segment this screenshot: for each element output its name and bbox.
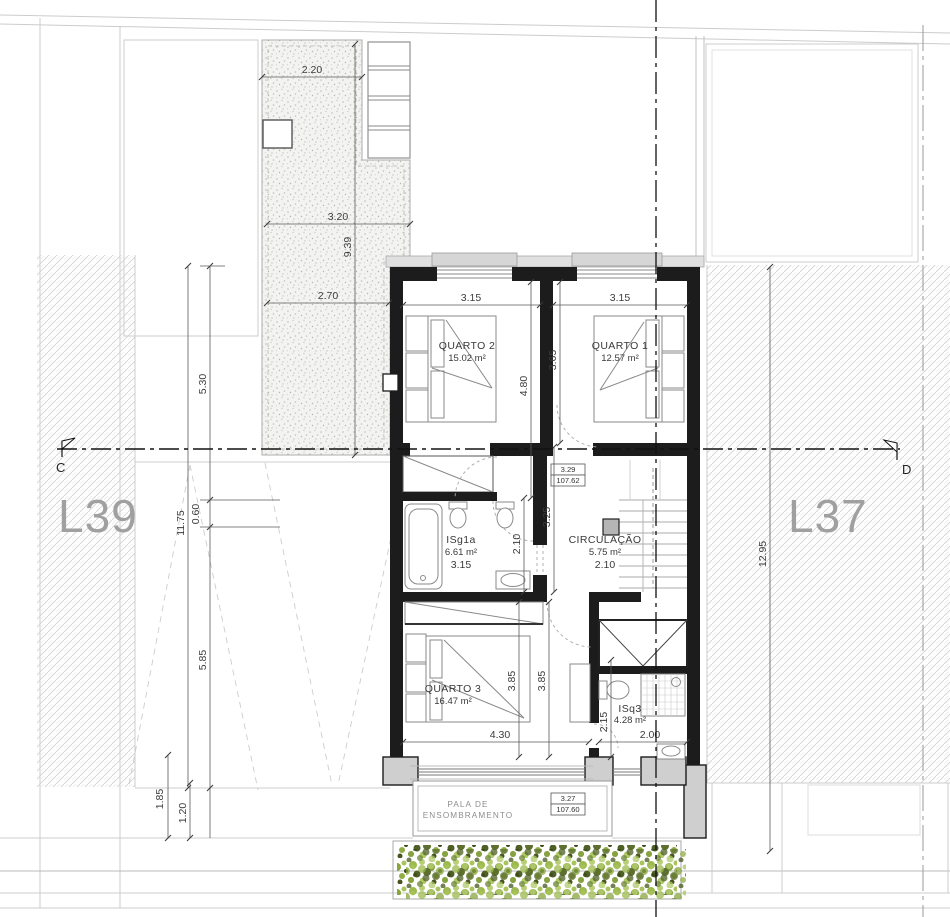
yard-slope-lines <box>128 463 407 790</box>
pergola-steps <box>368 42 410 158</box>
washbasin-isq3 <box>657 744 685 759</box>
room-label-quarto2: QUARTO 2 <box>439 340 496 352</box>
room-label-quarto1: QUARTO 1 <box>592 340 649 352</box>
room-area-quarto1: 12.57 m² <box>601 353 639 364</box>
bed-quarto2 <box>406 316 496 422</box>
dim-quarto2-width: 3.15 <box>461 292 482 304</box>
dim-yard-top: 2.20 <box>302 64 323 76</box>
dim-left-185: 1.85 <box>154 789 166 810</box>
level-marker-lower: 3.27 107.60 <box>551 793 585 815</box>
building <box>383 253 706 838</box>
shade-label-line2: ENSOMBRAMENTO <box>423 811 514 820</box>
dim-isg1a-width: 3.15 <box>451 559 472 571</box>
bathtub <box>405 504 442 589</box>
room-area-isg1a: 6.61 m² <box>445 547 477 558</box>
dim-yard-height: 9.39 <box>342 237 354 258</box>
dim-quarto2-depth: 4.80 <box>518 376 530 397</box>
dim-quarto1-depth: 3.65 <box>547 350 559 371</box>
room-label-isq3: ISq3 <box>618 703 641 715</box>
dim-circ-depth: 3.25 <box>541 507 553 528</box>
gravel-yard <box>262 40 410 455</box>
lot-label-left: L39 <box>58 490 138 542</box>
room-area-circulacao: 5.75 m² <box>589 547 621 558</box>
lot-label-right: L37 <box>788 490 868 542</box>
toilet-isq3 <box>599 681 629 699</box>
room-label-quarto3: QUARTO 3 <box>425 683 482 695</box>
level-height: 3.29 <box>561 465 576 474</box>
floor-plan-drawing: PALA DE ENSOMBRAMENTO 3.29 107.62 3.27 1… <box>0 0 950 917</box>
bidet <box>496 502 514 528</box>
dim-right-total: 12.95 <box>757 541 769 567</box>
left-wall-window <box>383 374 398 391</box>
dim-isg1a-depth: 2.10 <box>511 534 523 555</box>
room-area-isq3: 4.28 m² <box>614 715 646 726</box>
dim-left-total: 11.75 <box>175 510 187 536</box>
room-area-quarto2: 15.02 m² <box>448 353 486 364</box>
dim-quarto3-width: 4.30 <box>490 729 511 741</box>
level-elevation: 107.62 <box>556 476 579 485</box>
stair-void <box>599 620 687 668</box>
vegetation-strip <box>393 841 686 899</box>
room-area-quarto3: 16.47 m² <box>434 696 472 707</box>
dim-left-060: 0.60 <box>190 504 202 525</box>
room-label-circulacao: CIRCULAÇÃO <box>569 533 642 546</box>
bed-quarto1 <box>594 316 684 422</box>
dim-yard-mid: 3.20 <box>328 211 349 223</box>
dim-quarto1-width: 3.15 <box>610 292 631 304</box>
dim-yard-low: 2.70 <box>318 290 339 302</box>
shower <box>641 674 685 716</box>
dim-left-530: 5.30 <box>197 374 209 395</box>
yard-box <box>263 120 292 148</box>
floor-plan-canvas: PALA DE ENSOMBRAMENTO 3.29 107.62 3.27 1… <box>0 0 950 917</box>
section-label-d: D <box>902 462 911 477</box>
dim-circ-width: 2.10 <box>595 559 616 571</box>
dim-isq3-width: 2.00 <box>640 729 661 741</box>
washbasin <box>496 571 530 589</box>
desk-quarto3 <box>570 664 590 722</box>
toilet <box>449 502 467 528</box>
shade-label-line1: PALA DE <box>447 800 488 809</box>
dim-quarto3-depth-a: 3.85 <box>506 671 518 692</box>
stair-pillar <box>603 519 619 535</box>
level-elevation: 107.60 <box>556 805 579 814</box>
level-marker-upper: 3.29 107.62 <box>551 464 585 486</box>
section-label-c: C <box>56 460 65 475</box>
dim-quarto3-depth-b: 3.85 <box>536 671 548 692</box>
dim-left-120: 1.20 <box>177 803 189 824</box>
dim-left-585: 5.85 <box>197 650 209 671</box>
dim-isq3-depth: 2.15 <box>598 712 610 733</box>
room-label-isg1a: ISg1a <box>446 534 475 546</box>
wardrobe-quarto3 <box>405 602 543 624</box>
level-height: 3.27 <box>561 794 576 803</box>
